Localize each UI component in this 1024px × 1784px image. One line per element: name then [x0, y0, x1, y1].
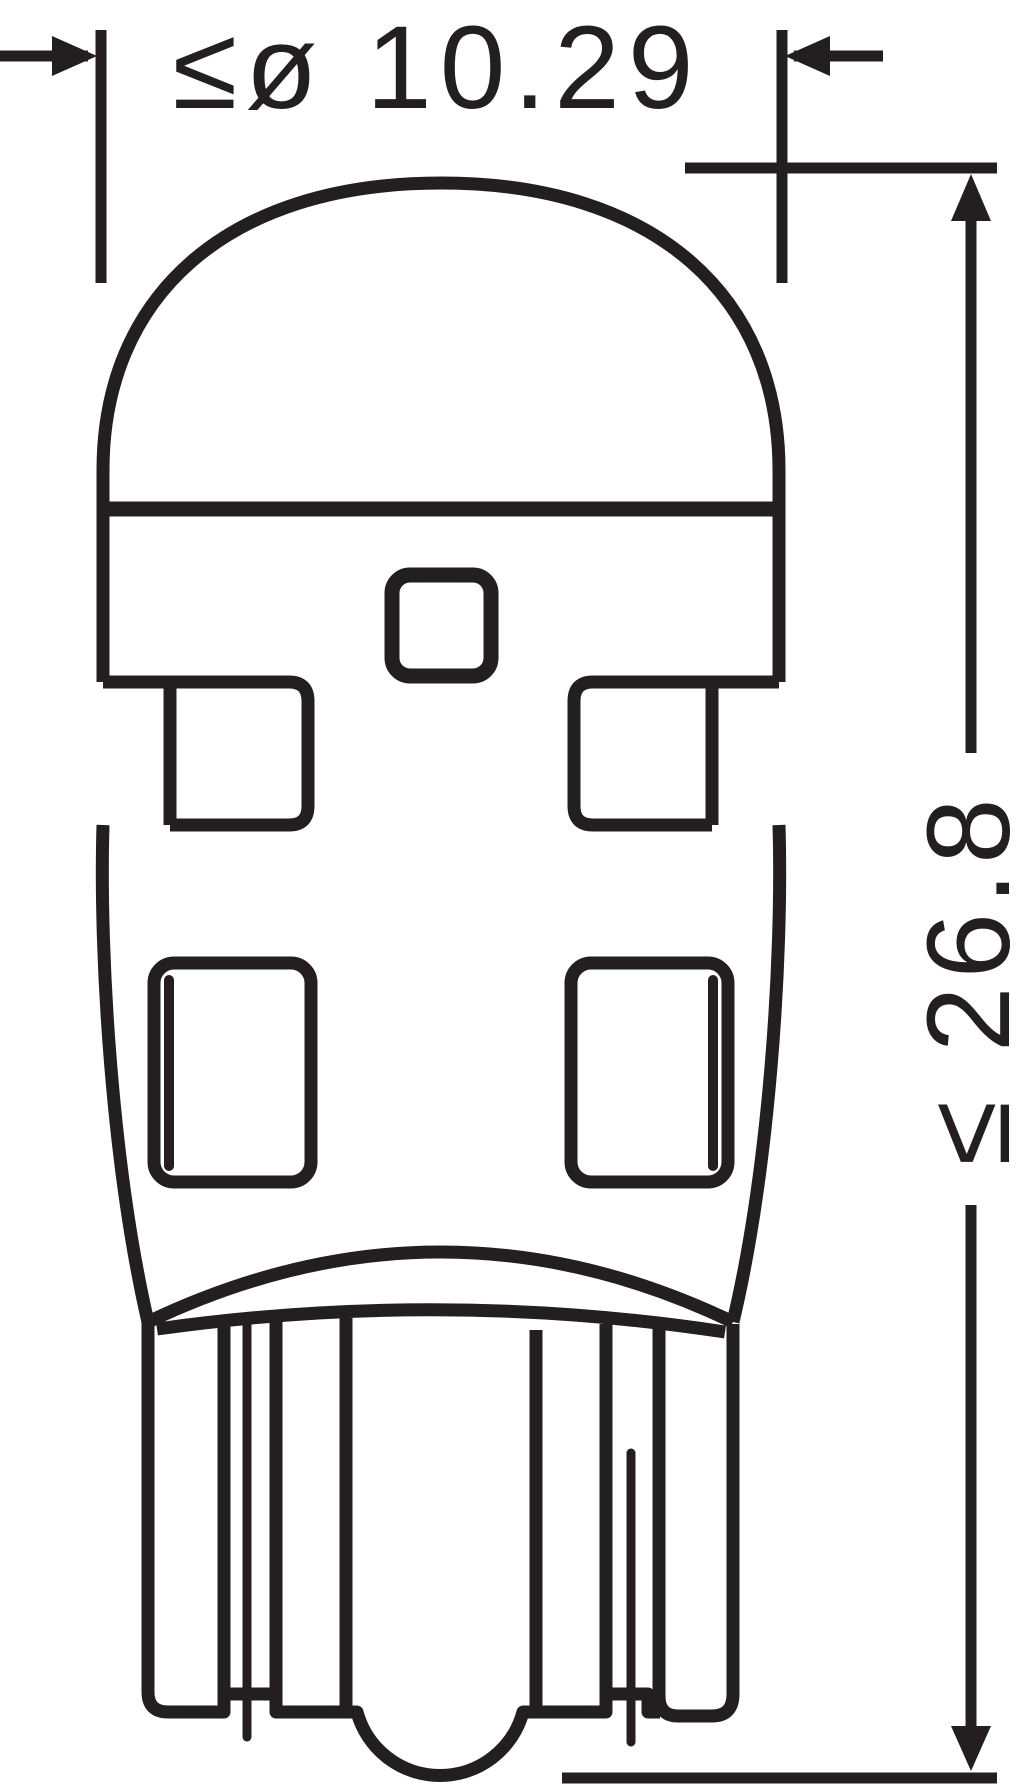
- led-chip-right: [571, 963, 728, 1182]
- wedge-base: [148, 1318, 733, 1775]
- dome-outline: [103, 183, 779, 682]
- wing-left: [103, 682, 308, 825]
- diameter-dimension: ≤ø 10.29: [0, 2, 883, 283]
- arrow-right-icon: [52, 36, 97, 76]
- diameter-label: ≤ø 10.29: [173, 2, 702, 134]
- wing-right: [574, 682, 779, 825]
- length-label: ≤ 26.8: [903, 790, 1024, 1165]
- arrow-down-icon: [951, 1726, 991, 1771]
- bulb-dimension-drawing: ≤ø 10.29 ≤ 26.8: [0, 0, 1024, 1784]
- body-side-right: [733, 825, 780, 1322]
- technical-drawing-page: ≤ø 10.29 ≤ 26.8: [0, 0, 1024, 1784]
- wedge-u-bend-right: [659, 1324, 733, 1716]
- bulb-outline: [102, 183, 779, 1332]
- center-lens-square: [392, 575, 491, 676]
- body-side-left: [102, 825, 148, 1322]
- led-chip-left: [154, 963, 311, 1182]
- length-label-group: ≤ 26.8: [903, 790, 1024, 1165]
- skirt-arc-inner: [157, 1310, 725, 1332]
